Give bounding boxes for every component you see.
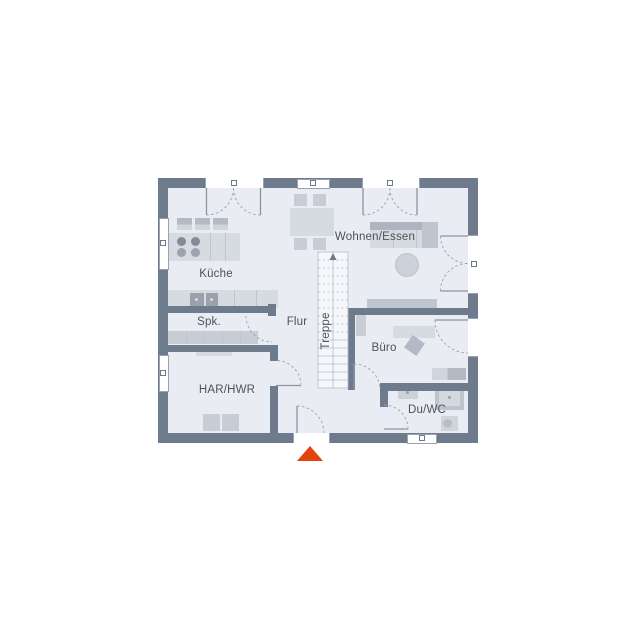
door-post <box>231 180 237 186</box>
office-cabinet <box>356 312 366 336</box>
kitchen-sink <box>206 293 218 306</box>
office-shelf <box>432 368 466 380</box>
kitchen-stool <box>177 218 192 230</box>
wall-pantry-utility <box>168 345 270 352</box>
door-post <box>387 180 393 186</box>
dining-chair <box>313 194 326 206</box>
kitchen-stool <box>195 218 210 230</box>
window-handle <box>160 370 166 376</box>
kitchen-stool <box>213 218 228 230</box>
pantry-shelf <box>168 331 258 344</box>
sofa-side <box>422 222 438 248</box>
stove-burner <box>191 248 200 257</box>
stove-burner <box>191 237 200 246</box>
dining-table <box>290 208 334 236</box>
room-label-du-wc: Du/WC <box>408 404 446 416</box>
stove-burner <box>177 248 186 257</box>
wall-living-office <box>348 308 468 315</box>
dining-chair <box>294 194 307 206</box>
kitchen-counter-stove <box>168 233 240 261</box>
washing-machine <box>203 414 220 431</box>
door-post <box>471 261 477 267</box>
wall-stairs <box>348 308 355 390</box>
wall-jamb <box>270 345 278 361</box>
outer-wall-right <box>468 178 478 443</box>
room-label-buero: Büro <box>371 342 396 354</box>
room-label-treppe: Treppe <box>320 312 332 349</box>
room-label-har-hwr: HAR/HWR <box>199 384 255 396</box>
window-handle <box>419 435 425 441</box>
room-label-spk: Spk. <box>197 316 221 328</box>
stove-burner <box>177 237 186 246</box>
window-handle <box>310 180 316 186</box>
wall-jamb <box>268 304 276 316</box>
dining-chair <box>313 238 326 250</box>
wall-office-bath <box>380 383 468 391</box>
toilet <box>441 416 458 431</box>
door-office-outside <box>468 318 478 357</box>
floor-plan-canvas: Küche Spk. HAR/HWR Flur Treppe Wohnen/Es… <box>0 0 636 636</box>
room-label-flur: Flur <box>287 316 308 328</box>
window-handle <box>160 240 166 246</box>
wall-utility-hall <box>270 386 278 433</box>
wall-bath-left <box>380 383 388 407</box>
wall-kitchen-pantry <box>168 306 268 313</box>
kitchen-sink <box>190 293 204 306</box>
room-label-kueche: Küche <box>199 268 233 280</box>
floor-plan: Küche Spk. HAR/HWR Flur Treppe Wohnen/Es… <box>158 178 478 443</box>
room-label-wohnen-essen: Wohnen/Essen <box>335 231 415 243</box>
dryer <box>222 414 239 431</box>
entrance-door-opening <box>293 433 330 443</box>
dining-chair <box>294 238 307 250</box>
sideboard <box>367 299 437 308</box>
coffee-table <box>395 253 419 277</box>
entrance-arrow-marker <box>297 446 323 461</box>
